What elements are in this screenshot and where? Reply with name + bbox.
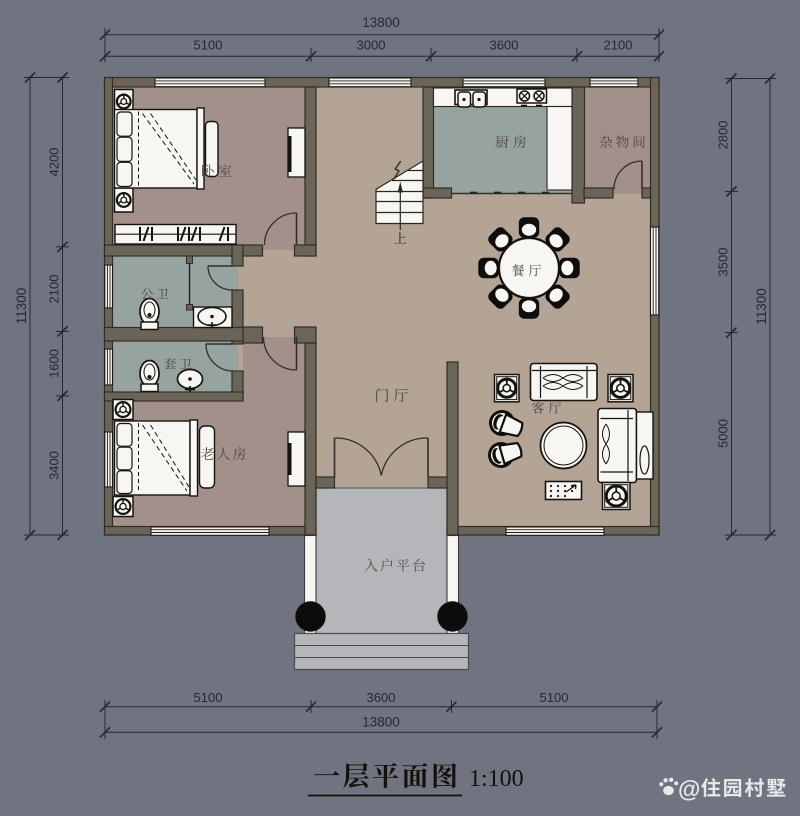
svg-text:2100: 2100	[47, 275, 62, 304]
svg-text:5100: 5100	[194, 38, 223, 53]
svg-text:11300: 11300	[14, 288, 29, 325]
svg-text:5000: 5000	[716, 419, 731, 448]
svg-text:13800: 13800	[362, 15, 400, 30]
svg-text:5100: 5100	[540, 690, 569, 705]
svg-text:2800: 2800	[716, 121, 731, 150]
svg-text:2100: 2100	[604, 38, 633, 53]
svg-text:1600: 1600	[47, 349, 62, 378]
svg-text:4200: 4200	[47, 148, 62, 177]
svg-text:3400: 3400	[47, 451, 62, 480]
svg-text:3600: 3600	[367, 690, 396, 705]
svg-text:3500: 3500	[716, 248, 731, 277]
svg-text:@: @	[678, 776, 700, 802]
svg-text:5100: 5100	[194, 690, 223, 705]
svg-text:11300: 11300	[754, 288, 769, 325]
svg-text:3600: 3600	[490, 38, 519, 53]
svg-text:1:100: 1:100	[469, 766, 524, 792]
svg-text:13800: 13800	[362, 715, 400, 730]
svg-text:3000: 3000	[357, 38, 386, 53]
